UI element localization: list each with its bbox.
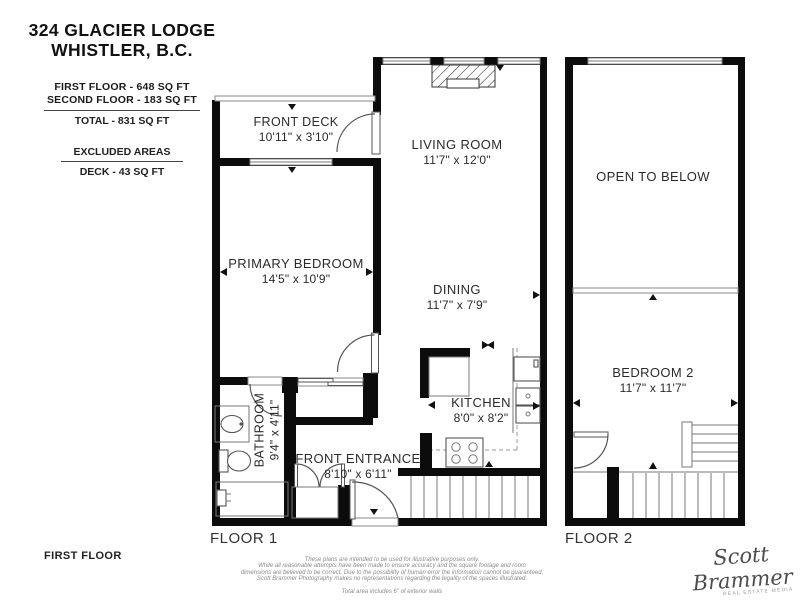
floor2-stairs (619, 422, 738, 518)
total-area: TOTAL - 831 SQ FT (22, 115, 222, 127)
deck-railing (215, 96, 375, 101)
page-floor-caption: FIRST FLOOR (44, 550, 122, 562)
total-area-note: Total area includes 6" of exterior walls (241, 589, 544, 595)
window (498, 58, 540, 64)
first-floor-area: FIRST FLOOR - 648 SQ FT (22, 81, 222, 94)
info-panel: 324 GLACIER LODGE WHISTLER, B.C. FIRST F… (22, 20, 222, 178)
floor2-window (588, 58, 722, 64)
window (444, 58, 484, 64)
room-label-front-deck: FRONT DECK 10'11" x 3'10" (253, 115, 338, 144)
pantry-box (429, 357, 469, 396)
vanity-sink (215, 406, 249, 442)
room-label-primary-bedroom: PRIMARY BEDROOM 14'5" x 10'9" (228, 257, 364, 286)
excluded-deck-area: DECK - 43 SQ FT (22, 166, 222, 178)
shower (216, 482, 288, 516)
room-label-open-to-below: OPEN TO BELOW (596, 170, 710, 184)
divider (61, 161, 183, 162)
floor2-caption: FLOOR 2 (565, 530, 633, 547)
room-label-kitchen: KITCHEN 8'0" x 8'2" (451, 396, 511, 425)
stove (446, 438, 483, 467)
disclaimer-line: While all reasonable attempts have been … (241, 563, 544, 569)
primary-bedroom-door (338, 333, 379, 373)
loft-railing (573, 288, 738, 293)
signature-logo: Scott Brammer REAL ESTATE MEDIA (684, 540, 799, 600)
deck-door (337, 112, 380, 154)
page-title-line1: 324 GLACIER LODGE (22, 20, 222, 40)
room-label-bathroom: BATHROOM 9'4" x 4'11" (253, 393, 282, 468)
floor1-stairs (411, 476, 528, 518)
fireplace (432, 65, 495, 88)
room-label-front-entrance: FRONT ENTRANCE 8'10" x 6'11" (295, 452, 420, 481)
window (383, 58, 430, 64)
page-title-line2: WHISTLER, B.C. (22, 40, 222, 60)
bedroom2-door (573, 432, 608, 472)
disclaimer-line: dimensions are believed to be correct. D… (241, 570, 544, 576)
floor1-caption: FLOOR 1 (210, 530, 278, 547)
disclaimer-text: These plans are intended to be used for … (241, 557, 544, 595)
excluded-areas-heading: EXCLUDED AREAS (22, 146, 222, 158)
second-floor-area: SECOND FLOOR - 183 SQ FT (22, 94, 222, 107)
disclaimer-line: Scott Brammer Photography makes no repre… (241, 576, 544, 582)
window (250, 159, 332, 165)
front-entrance-door (350, 480, 398, 526)
bedroom-closet-sliding-doors (298, 378, 363, 386)
divider (44, 110, 200, 111)
room-label-dining: DINING 11'7" x 7'9" (427, 283, 488, 312)
fridge (514, 357, 540, 381)
room-label-living-room: LIVING ROOM 11'7" x 12'0" (411, 138, 502, 167)
toilet (219, 450, 251, 472)
room-label-bedroom-2: BEDROOM 2 11'7" x 11'7" (612, 366, 694, 395)
floor-plan-page: 324 GLACIER LODGE WHISTLER, B.C. FIRST F… (0, 0, 800, 600)
